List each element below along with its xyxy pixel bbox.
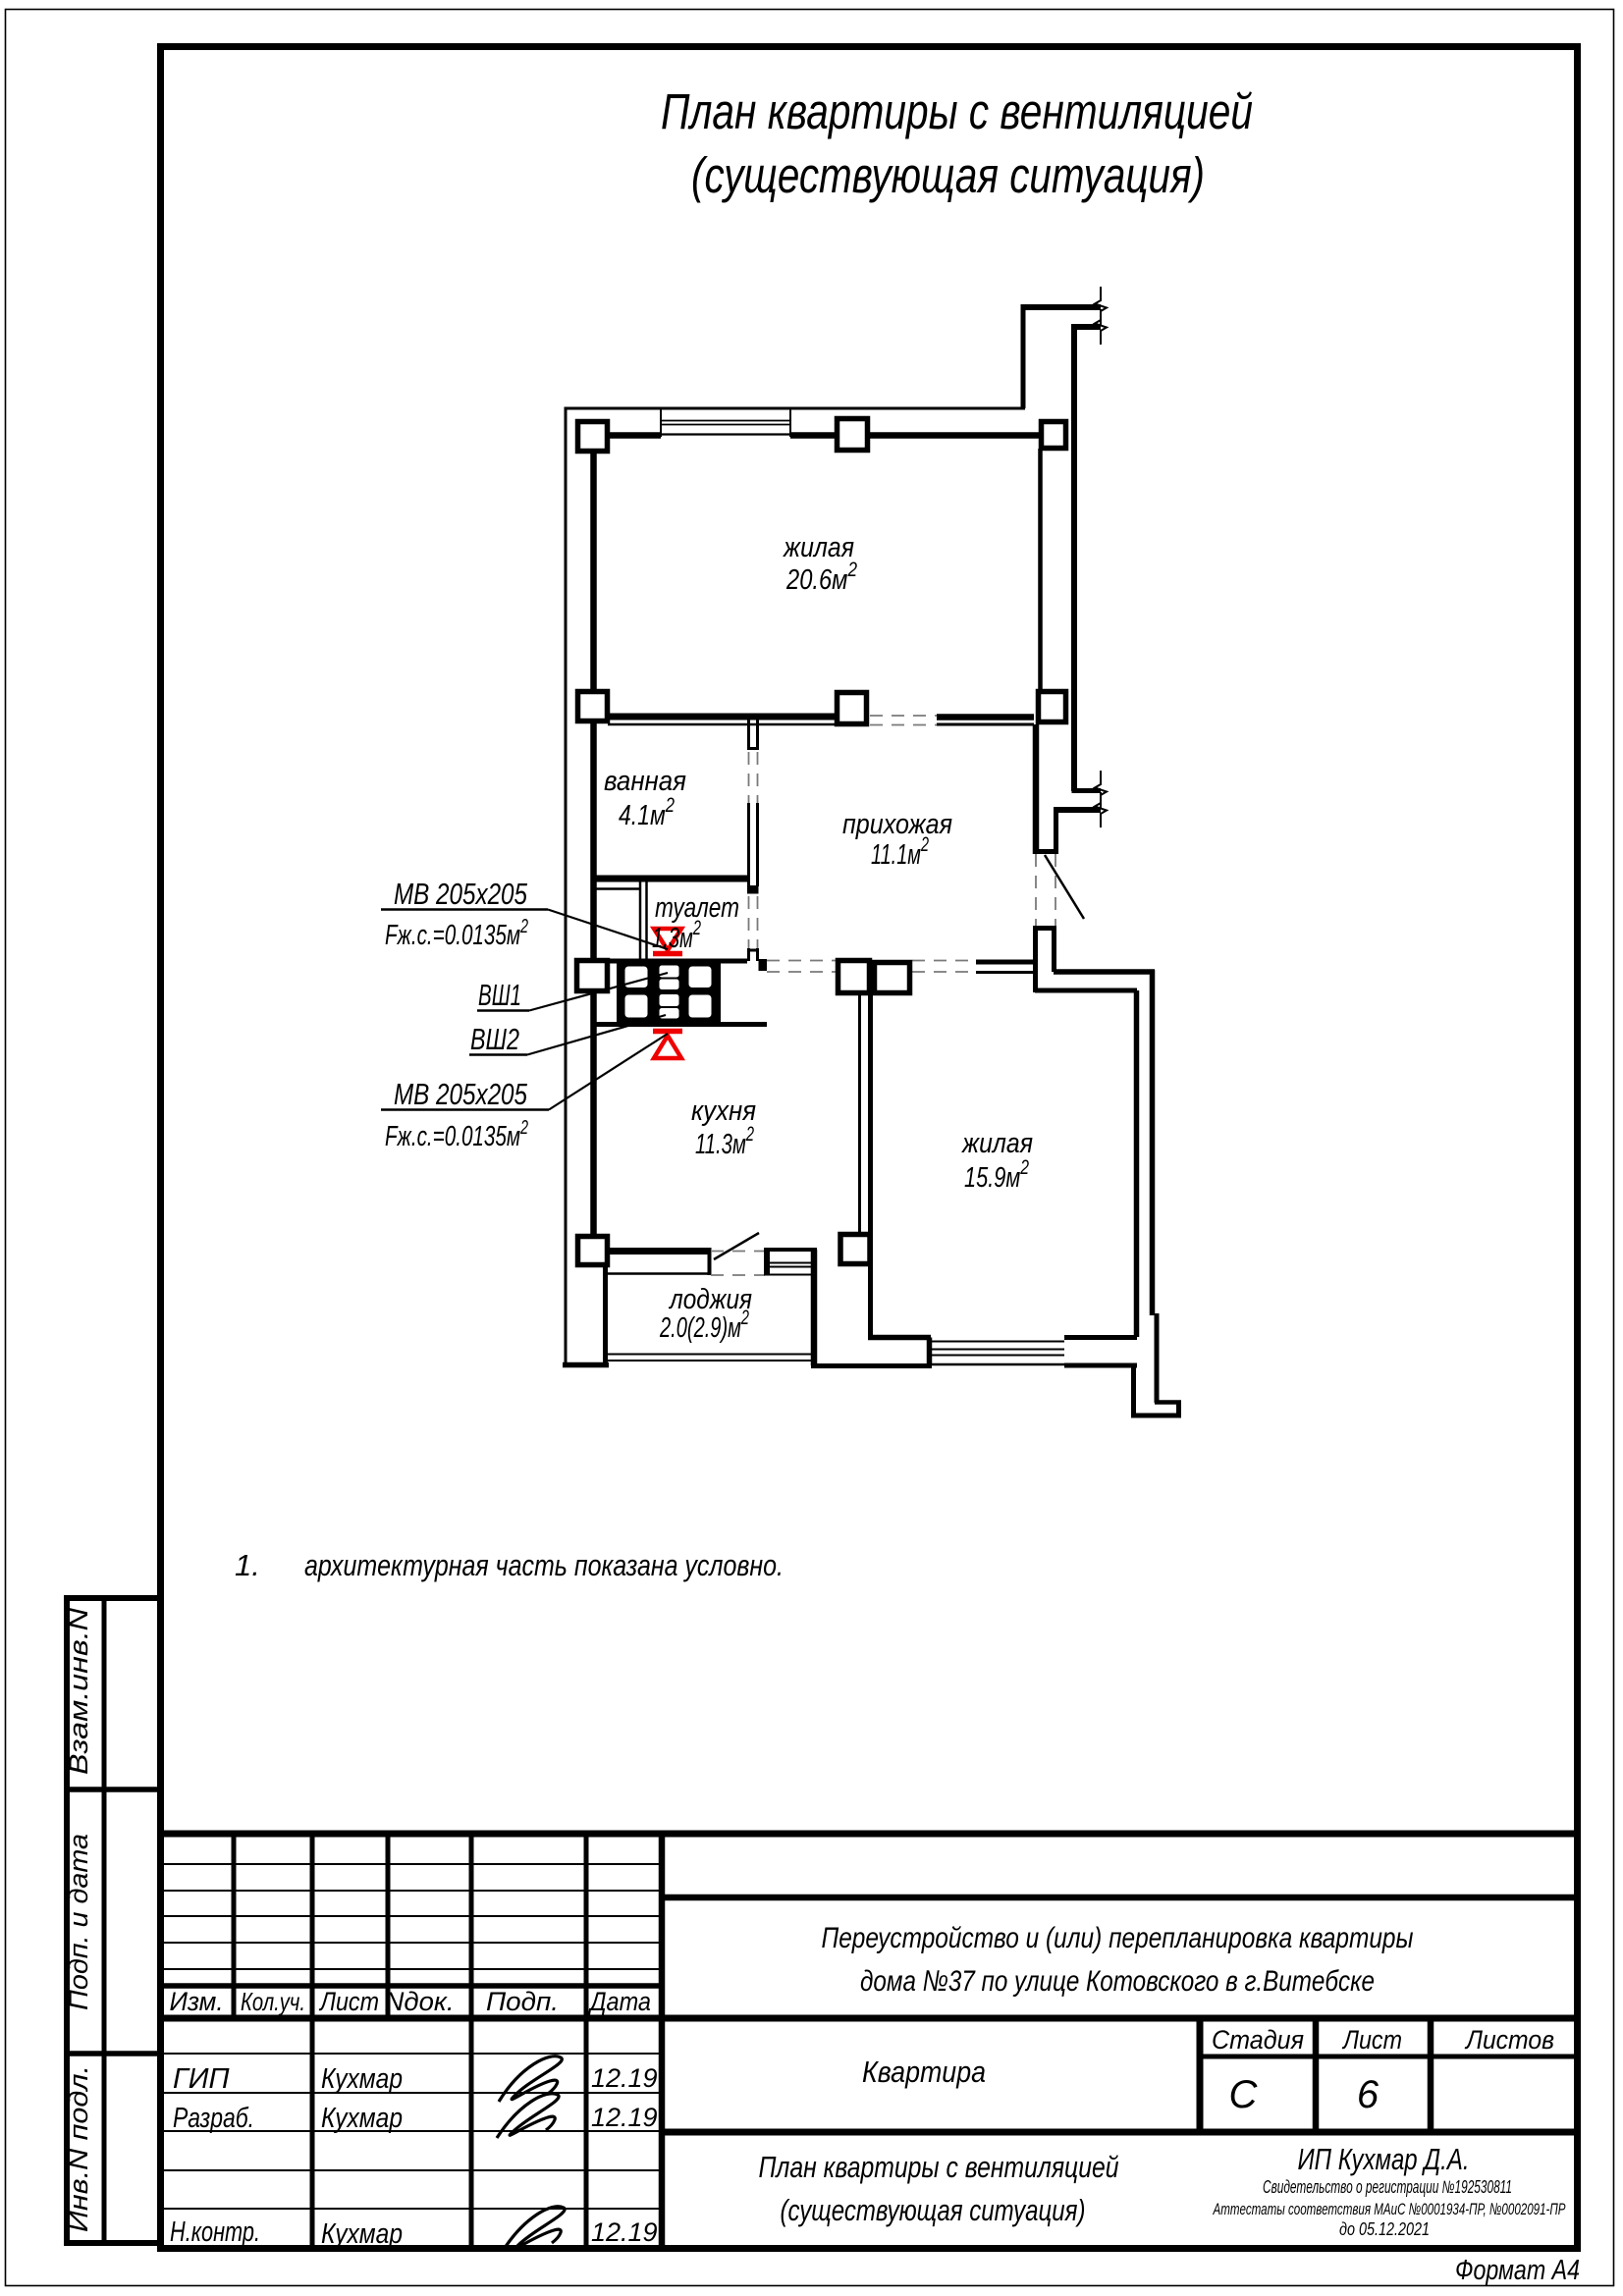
svg-text:План квартиры с вентиляцией: План квартиры с вентиляцией [661, 83, 1253, 139]
svg-text:Fж.с.=0.0135м2: Fж.с.=0.0135м2 [385, 916, 528, 951]
svg-text:Формат А4: Формат А4 [1455, 2255, 1580, 2286]
svg-text:Nдок.: Nдок. [385, 1987, 455, 2016]
svg-text:Аттестаты соответствия МАиС №0: Аттестаты соответствия МАиС №0001934-ПР,… [1213, 2200, 1566, 2218]
svg-text:Разраб.: Разраб. [173, 2103, 254, 2134]
svg-text:6: 6 [1357, 2073, 1380, 2116]
svg-text:прихожая: прихожая [842, 809, 952, 840]
svg-text:Изм.: Изм. [170, 1987, 224, 2016]
svg-text:МВ 205х205: МВ 205х205 [394, 1077, 528, 1111]
svg-text:МВ 205х205: МВ 205х205 [394, 877, 528, 911]
svg-text:Инв.N подл.: Инв.N подл. [64, 2065, 93, 2232]
svg-text:Подп. и дата: Подп. и дата [64, 1834, 93, 2010]
svg-text:ВШ1: ВШ1 [478, 978, 521, 1012]
svg-text:ИП Кухмар Д.А.: ИП Кухмар Д.А. [1298, 2142, 1470, 2176]
svg-text:12.19: 12.19 [591, 2063, 658, 2093]
svg-text:Кухмар: Кухмар [321, 2218, 403, 2250]
svg-text:Лист: Лист [1341, 2025, 1402, 2055]
svg-text:2.0(2.9)м2: 2.0(2.9)м2 [659, 1307, 749, 1344]
svg-text:Переустройство и (или) перепла: Переустройство и (или) перепланировка кв… [822, 1922, 1414, 1954]
svg-text:План квартиры с вентиляцией: План квартиры с вентиляцией [759, 2150, 1119, 2184]
svg-text:жилая: жилая [782, 532, 854, 563]
svg-text:Стадия: Стадия [1212, 2025, 1304, 2055]
svg-text:11.3м2: 11.3м2 [695, 1123, 754, 1160]
svg-text:ванная: ванная [604, 766, 686, 797]
svg-text:Листов: Листов [1464, 2025, 1554, 2055]
svg-text:Н.контр.: Н.контр. [170, 2216, 260, 2248]
svg-text:Лист: Лист [318, 1987, 379, 2016]
svg-text:Fж.с.=0.0135м2: Fж.с.=0.0135м2 [385, 1117, 528, 1152]
svg-text:Подп.: Подп. [486, 1987, 559, 2016]
svg-text:ВШ2: ВШ2 [470, 1022, 519, 1056]
svg-text:Квартира: Квартира [862, 2055, 986, 2089]
svg-text:(существующая ситуация): (существующая ситуация) [781, 2193, 1086, 2227]
svg-text:до 05.12.2021: до 05.12.2021 [1339, 2219, 1430, 2239]
svg-text:(существующая ситуация): (существующая ситуация) [691, 147, 1205, 203]
svg-text:ГИП: ГИП [173, 2063, 231, 2095]
svg-text:12.19: 12.19 [591, 2103, 658, 2132]
svg-text:Взам.инв.N: Взам.инв.N [64, 1607, 93, 1775]
svg-text:Кухмар: Кухмар [321, 2103, 403, 2134]
svg-text:Свидетельство о регистрации №1: Свидетельство о регистрации №192530811 [1263, 2177, 1512, 2197]
svg-text:15.9м2: 15.9м2 [964, 1156, 1029, 1194]
svg-text:лоджия: лоджия [668, 1284, 752, 1315]
svg-text:жилая: жилая [960, 1128, 1033, 1159]
svg-text:С: С [1229, 2073, 1259, 2116]
svg-text:12.19: 12.19 [591, 2217, 658, 2247]
svg-text:Кол.уч.: Кол.уч. [241, 1987, 305, 2016]
svg-text:11.1м2: 11.1м2 [871, 833, 929, 871]
svg-text:20.6м2: 20.6м2 [785, 559, 857, 596]
svg-text:архитектурная часть показана у: архитектурная часть показана условно. [304, 1548, 784, 1582]
svg-text:дома №37 по улице Котовского в: дома №37 по улице Котовского в г.Витебск… [860, 1965, 1375, 1998]
svg-text:Дата: Дата [587, 1987, 651, 2016]
svg-text:Кухмар: Кухмар [321, 2063, 403, 2095]
svg-text:1.: 1. [235, 1548, 260, 1582]
